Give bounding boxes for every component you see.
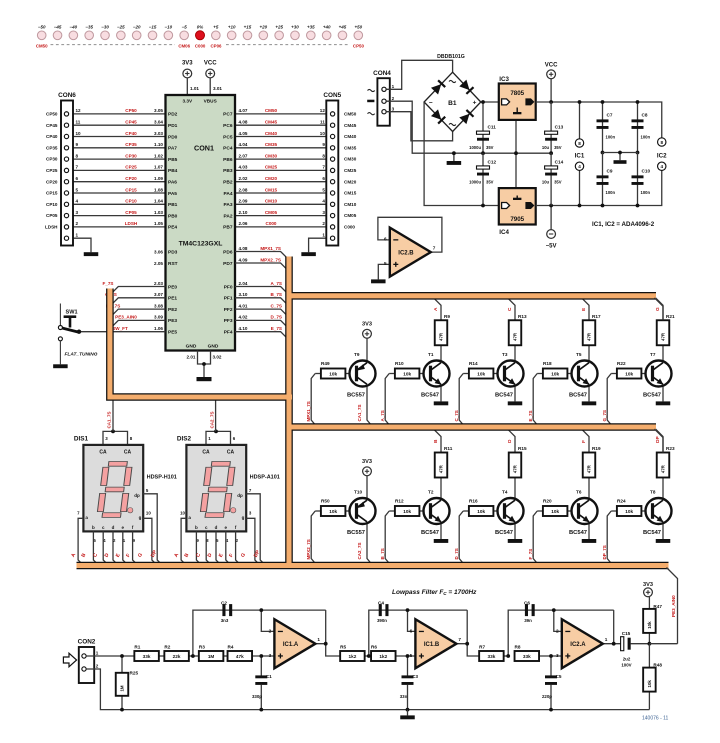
svg-text:1.02: 1.02 xyxy=(154,153,163,158)
svg-text:PD6: PD6 xyxy=(223,249,233,255)
svg-text:3: 3 xyxy=(322,210,325,215)
svg-text:10k: 10k xyxy=(625,371,633,376)
svg-text:47R: 47R xyxy=(439,464,444,473)
svg-text:5: 5 xyxy=(76,187,79,192)
svg-text:MPX2_7S: MPX2_7S xyxy=(306,539,311,559)
svg-text:CP06: CP06 xyxy=(211,44,223,49)
svg-text:3.09: 3.09 xyxy=(154,315,163,320)
svg-text:35V: 35V xyxy=(554,145,562,150)
svg-text:+30: +30 xyxy=(291,24,299,29)
svg-text:B1: B1 xyxy=(448,100,457,107)
svg-text:PD1: PD1 xyxy=(168,123,178,129)
svg-text:−35: −35 xyxy=(85,24,93,29)
svg-text:g: g xyxy=(242,515,245,520)
svg-text:1M: 1M xyxy=(208,654,215,659)
svg-text:−: − xyxy=(429,99,433,106)
svg-text:CM10: CM10 xyxy=(265,199,278,204)
svg-text:6: 6 xyxy=(410,628,413,633)
svg-text:B: B xyxy=(433,439,439,443)
svg-text:PB6: PB6 xyxy=(223,157,233,163)
svg-text:IC1.B: IC1.B xyxy=(424,642,440,648)
svg-text:PE1: PE1 xyxy=(168,296,177,302)
svg-text:BC547: BC547 xyxy=(569,392,587,398)
svg-text:CM45: CM45 xyxy=(265,120,278,125)
svg-text:CA: CA xyxy=(99,450,107,456)
svg-text:d: d xyxy=(215,525,218,530)
svg-text:CP45: CP45 xyxy=(125,120,137,125)
svg-text:CM15: CM15 xyxy=(344,191,357,196)
svg-text:BC547: BC547 xyxy=(495,530,513,536)
svg-text:PB5: PB5 xyxy=(168,157,178,163)
svg-text:R10: R10 xyxy=(395,361,404,366)
svg-text:PB1: PB1 xyxy=(168,202,178,208)
svg-text:PD2: PD2 xyxy=(168,112,178,118)
svg-text:5: 5 xyxy=(384,261,387,266)
svg-text:BC547: BC547 xyxy=(643,530,661,536)
svg-text:CP50: CP50 xyxy=(46,112,58,117)
svg-text:D: D xyxy=(507,439,513,443)
svg-text:10k: 10k xyxy=(551,509,559,514)
svg-text:PA7: PA7 xyxy=(168,146,177,152)
svg-text:1: 1 xyxy=(392,84,395,89)
svg-text:100n: 100n xyxy=(641,134,651,139)
svg-text:CP30: CP30 xyxy=(125,153,137,158)
svg-text:BC557: BC557 xyxy=(347,392,365,398)
svg-text:−30: −30 xyxy=(101,24,109,29)
svg-text:CA: CA xyxy=(124,450,132,456)
svg-text:10k: 10k xyxy=(647,621,652,629)
svg-text:7: 7 xyxy=(76,165,79,170)
svg-text:IC2: IC2 xyxy=(657,153,667,160)
svg-text:d: d xyxy=(112,525,115,530)
svg-text:CON2: CON2 xyxy=(78,638,96,645)
svg-text:PE2: PE2 xyxy=(168,307,177,313)
svg-text:VBUS: VBUS xyxy=(204,98,217,103)
svg-text:CON4: CON4 xyxy=(373,70,391,77)
svg-text:47R: 47R xyxy=(587,332,592,341)
svg-text:47R: 47R xyxy=(661,464,666,473)
svg-text:BC547: BC547 xyxy=(643,392,661,398)
svg-text:PD7: PD7 xyxy=(223,261,233,267)
svg-text:2.10: 2.10 xyxy=(239,210,248,215)
svg-text:−40: −40 xyxy=(70,24,78,29)
svg-text:2.05: 2.05 xyxy=(154,261,163,266)
svg-text:10: 10 xyxy=(180,511,185,516)
svg-text:CA: CA xyxy=(227,450,235,456)
svg-text:PB2: PB2 xyxy=(223,180,233,186)
svg-text:CM50: CM50 xyxy=(265,108,278,113)
svg-text:0%: 0% xyxy=(197,24,204,29)
svg-text:2.06: 2.06 xyxy=(239,221,248,226)
svg-text:IC1.A: IC1.A xyxy=(283,642,299,648)
svg-text:−5: −5 xyxy=(182,24,188,29)
svg-text:47R: 47R xyxy=(439,332,444,341)
svg-text:IC2.B: IC2.B xyxy=(398,250,414,256)
svg-text:C14: C14 xyxy=(555,160,564,165)
svg-text:9: 9 xyxy=(322,142,325,147)
svg-text:CP35: CP35 xyxy=(125,142,137,147)
svg-text:2: 2 xyxy=(269,628,272,633)
svg-text:C5: C5 xyxy=(556,674,562,679)
svg-text:R1: R1 xyxy=(134,644,140,649)
svg-text:CP15: CP15 xyxy=(46,191,58,196)
svg-text:10: 10 xyxy=(146,511,151,516)
svg-text:MPX1_7S: MPX1_7S xyxy=(306,401,311,421)
svg-text:DIS2: DIS2 xyxy=(177,435,192,442)
svg-text:6: 6 xyxy=(76,176,79,181)
svg-text:PE5: PE5 xyxy=(168,330,177,336)
svg-text:2.03: 2.03 xyxy=(154,281,163,286)
svg-text:1: 1 xyxy=(317,637,320,642)
svg-text:LDSH: LDSH xyxy=(125,221,138,226)
svg-text:CP10: CP10 xyxy=(125,199,137,204)
svg-text:4: 4 xyxy=(578,164,581,169)
svg-text:8: 8 xyxy=(76,153,79,158)
svg-text:CP45: CP45 xyxy=(46,123,58,128)
svg-text:IC1: IC1 xyxy=(575,153,585,160)
svg-text:5: 5 xyxy=(322,187,325,192)
svg-text:T3: T3 xyxy=(502,352,508,357)
svg-text:CM35: CM35 xyxy=(344,145,357,150)
svg-text:C8: C8 xyxy=(642,113,648,118)
svg-text:4: 4 xyxy=(660,164,663,169)
svg-text:10u: 10u xyxy=(542,180,550,185)
svg-text:CM30: CM30 xyxy=(265,153,278,158)
svg-text:4.03: 4.03 xyxy=(239,165,248,170)
svg-text:10k: 10k xyxy=(329,371,337,376)
svg-text:dp: dp xyxy=(237,493,243,498)
svg-text:GND: GND xyxy=(186,344,197,350)
svg-text:47R: 47R xyxy=(513,332,518,341)
svg-text:C_7S: C_7S xyxy=(454,410,459,421)
svg-text:CM06: CM06 xyxy=(178,44,190,49)
svg-text:2u2: 2u2 xyxy=(623,657,631,662)
svg-text:CM30: CM30 xyxy=(344,157,357,162)
svg-text:CM50: CM50 xyxy=(36,44,48,49)
svg-text:CM05: CM05 xyxy=(265,210,278,215)
svg-text:C: C xyxy=(507,307,513,311)
svg-text:2: 2 xyxy=(556,628,559,633)
svg-text:4.05: 4.05 xyxy=(239,131,248,136)
svg-text:CM15: CM15 xyxy=(265,187,278,192)
svg-text:CM45: CM45 xyxy=(344,123,357,128)
svg-text:2.04: 2.04 xyxy=(239,281,248,286)
svg-text:35V: 35V xyxy=(554,180,562,185)
svg-text:CP50: CP50 xyxy=(353,44,365,49)
svg-text:PA5: PA5 xyxy=(168,191,177,197)
svg-text:CM20: CM20 xyxy=(344,179,357,184)
svg-text:B_7S: B_7S xyxy=(271,292,283,297)
svg-text:5: 5 xyxy=(410,653,413,658)
svg-text:C13: C13 xyxy=(555,125,564,130)
svg-text:100n: 100n xyxy=(606,134,616,139)
svg-text:g: g xyxy=(139,515,142,520)
svg-text:C9: C9 xyxy=(607,169,613,174)
svg-text:CM25: CM25 xyxy=(265,165,278,170)
svg-text:PF0: PF0 xyxy=(224,284,233,290)
svg-text:CP05: CP05 xyxy=(46,213,58,218)
svg-text:1: 1 xyxy=(605,637,608,642)
svg-text:1k2: 1k2 xyxy=(379,654,387,659)
svg-text:3.03: 3.03 xyxy=(154,131,163,136)
svg-text:PC6: PC6 xyxy=(223,123,233,129)
svg-text:R14: R14 xyxy=(469,361,478,366)
svg-text:PB0: PB0 xyxy=(168,213,178,219)
svg-text:C4: C4 xyxy=(378,600,384,605)
svg-text:CM20: CM20 xyxy=(265,176,278,181)
svg-text:2.08: 2.08 xyxy=(239,187,248,192)
svg-text:CM25: CM25 xyxy=(344,168,357,173)
svg-text:+20: +20 xyxy=(259,24,267,29)
svg-text:PA2: PA2 xyxy=(224,213,233,219)
svg-text:PE3_AIN0: PE3_AIN0 xyxy=(115,315,137,320)
svg-text:10k: 10k xyxy=(477,371,485,376)
svg-text:DBDB101G: DBDB101G xyxy=(437,54,465,60)
svg-text:CM50: CM50 xyxy=(344,112,357,117)
svg-text:4: 4 xyxy=(322,199,325,204)
svg-text:BC547: BC547 xyxy=(495,392,513,398)
svg-text:R16: R16 xyxy=(469,499,478,504)
svg-text:HDSP-A101: HDSP-A101 xyxy=(250,474,280,480)
svg-text:T1: T1 xyxy=(428,352,434,357)
svg-text:R15: R15 xyxy=(518,446,527,451)
svg-text:1000u: 1000u xyxy=(469,180,481,185)
svg-text:F: F xyxy=(581,440,587,443)
svg-text:3: 3 xyxy=(392,106,395,111)
svg-text:b: b xyxy=(92,525,95,530)
svg-text:10u: 10u xyxy=(542,145,550,150)
svg-text:R9: R9 xyxy=(444,314,450,319)
svg-text:R4: R4 xyxy=(228,644,234,649)
svg-text:12: 12 xyxy=(320,108,326,113)
svg-text:R48: R48 xyxy=(653,663,662,668)
svg-text:b: b xyxy=(195,525,198,530)
svg-text:CON5: CON5 xyxy=(323,92,341,99)
svg-text:CP40: CP40 xyxy=(46,134,58,139)
svg-text:1.06: 1.06 xyxy=(154,326,163,331)
svg-text:T8: T8 xyxy=(650,489,656,494)
svg-text:PB4: PB4 xyxy=(168,168,178,174)
svg-text:3V3: 3V3 xyxy=(182,61,193,67)
svg-text:220p: 220p xyxy=(542,694,552,699)
svg-text:2: 2 xyxy=(392,96,395,101)
svg-text:PA3: PA3 xyxy=(224,202,233,208)
svg-text:2.02: 2.02 xyxy=(239,176,248,181)
svg-text:R3: R3 xyxy=(199,644,205,649)
svg-text:100n: 100n xyxy=(641,190,651,195)
svg-text:2: 2 xyxy=(76,221,79,226)
svg-text:C_7S: C_7S xyxy=(271,303,283,308)
svg-text:3: 3 xyxy=(76,210,79,215)
svg-text:3.04: 3.04 xyxy=(154,120,163,125)
svg-text:140076 - 11: 140076 - 11 xyxy=(642,716,669,722)
svg-text:BC547: BC547 xyxy=(569,530,587,536)
svg-text:7: 7 xyxy=(458,637,461,642)
svg-text:+50: +50 xyxy=(354,24,362,29)
svg-text:4.10: 4.10 xyxy=(239,326,248,331)
svg-text:47R: 47R xyxy=(661,332,666,341)
svg-text:VCC: VCC xyxy=(204,61,217,67)
svg-text:−5V: −5V xyxy=(546,244,557,250)
svg-text:10: 10 xyxy=(76,131,82,136)
svg-text:R5: R5 xyxy=(340,644,346,649)
svg-text:+40: +40 xyxy=(323,24,331,29)
svg-text:BC547: BC547 xyxy=(421,392,439,398)
svg-text:1: 1 xyxy=(322,233,325,238)
svg-text:R2: R2 xyxy=(164,644,170,649)
svg-text:1.01: 1.01 xyxy=(190,86,199,91)
svg-text:BC557: BC557 xyxy=(347,530,365,536)
svg-text:D_7S: D_7S xyxy=(454,548,459,559)
svg-text:33n: 33n xyxy=(400,694,408,699)
svg-text:6: 6 xyxy=(322,176,325,181)
svg-text:CM05: CM05 xyxy=(344,213,357,218)
svg-text:IC4: IC4 xyxy=(499,229,509,236)
svg-text:4: 4 xyxy=(76,199,79,204)
svg-text:3.08: 3.08 xyxy=(154,303,163,308)
svg-text:3.05: 3.05 xyxy=(154,108,163,113)
svg-text:CP05: CP05 xyxy=(125,210,137,215)
svg-text:C000: C000 xyxy=(266,221,277,226)
svg-text:+35: +35 xyxy=(307,24,315,29)
svg-text:1.04: 1.04 xyxy=(154,199,163,204)
svg-text:1.07: 1.07 xyxy=(154,165,163,170)
svg-text:SW_FT: SW_FT xyxy=(112,326,128,331)
svg-text:G: G xyxy=(655,307,661,311)
svg-text:+5: +5 xyxy=(213,24,219,29)
svg-text:CM10: CM10 xyxy=(344,202,357,207)
svg-text:10k: 10k xyxy=(329,509,337,514)
svg-text:R20: R20 xyxy=(543,499,552,504)
svg-text:dp: dp xyxy=(134,493,140,498)
svg-text:R49: R49 xyxy=(321,361,330,366)
svg-text:2.07: 2.07 xyxy=(239,153,248,158)
svg-text:PF1: PF1 xyxy=(224,296,233,302)
svg-text:11: 11 xyxy=(320,120,325,125)
svg-text:+15: +15 xyxy=(244,24,252,29)
svg-text:10k: 10k xyxy=(403,509,411,514)
svg-text:1.03: 1.03 xyxy=(154,210,163,215)
svg-text:R12: R12 xyxy=(395,499,404,504)
svg-text:T9: T9 xyxy=(354,352,360,357)
svg-text:2: 2 xyxy=(322,221,325,226)
svg-text:CP50: CP50 xyxy=(125,108,137,113)
svg-text:MPX2_7S: MPX2_7S xyxy=(260,257,281,262)
svg-text:CA1_7S: CA1_7S xyxy=(357,404,362,421)
svg-text:35V: 35V xyxy=(486,180,494,185)
svg-text:1.10: 1.10 xyxy=(154,142,163,147)
svg-text:10k: 10k xyxy=(647,680,652,688)
svg-text:+: + xyxy=(473,99,477,106)
svg-text:10k: 10k xyxy=(403,371,411,376)
svg-text:IC3: IC3 xyxy=(499,76,509,83)
svg-text:47R: 47R xyxy=(513,464,518,473)
svg-text:CP25: CP25 xyxy=(125,165,137,170)
svg-text:PA6: PA6 xyxy=(168,180,177,186)
svg-text:CA2_7S: CA2_7S xyxy=(357,542,362,559)
svg-text:390n: 390n xyxy=(377,618,387,623)
svg-text:CM40: CM40 xyxy=(265,131,278,136)
svg-text:PE3: PE3 xyxy=(168,318,177,324)
svg-text:Lowpass Filter FC = 1700Hz: Lowpass Filter FC = 1700Hz xyxy=(392,589,477,596)
svg-text:33k: 33k xyxy=(523,654,531,659)
svg-text:T6: T6 xyxy=(576,489,582,494)
svg-text:8: 8 xyxy=(578,141,581,146)
svg-text:10k: 10k xyxy=(625,509,633,514)
svg-text:CA1_7S: CA1_7S xyxy=(107,411,112,428)
svg-text:3: 3 xyxy=(269,653,272,658)
svg-text:R17: R17 xyxy=(592,314,601,319)
svg-text:DP_7S: DP_7S xyxy=(602,545,607,559)
svg-text:2: 2 xyxy=(96,664,99,669)
svg-text:IC1, IC2 = ADA4096-2: IC1, IC2 = ADA4096-2 xyxy=(592,221,655,228)
svg-text:CP15: CP15 xyxy=(125,187,137,192)
svg-text:T7: T7 xyxy=(650,352,656,357)
svg-text:R50: R50 xyxy=(321,499,330,504)
svg-text:IC2.A: IC2.A xyxy=(570,642,586,648)
svg-text:3V3: 3V3 xyxy=(643,582,653,588)
svg-text:33k: 33k xyxy=(487,654,495,659)
svg-text:R6: R6 xyxy=(371,644,377,649)
svg-text:C11: C11 xyxy=(488,125,497,130)
svg-text:R8: R8 xyxy=(515,644,521,649)
svg-text:7: 7 xyxy=(433,246,436,251)
svg-text:4.08: 4.08 xyxy=(239,246,248,251)
svg-text:CP35: CP35 xyxy=(46,145,58,150)
svg-text:4.07: 4.07 xyxy=(239,108,248,113)
svg-text:100V: 100V xyxy=(621,663,631,668)
svg-text:−10: −10 xyxy=(165,24,173,29)
svg-text:CM40: CM40 xyxy=(344,134,357,139)
svg-text:100n: 100n xyxy=(606,190,616,195)
svg-text:−20: −20 xyxy=(133,24,141,29)
svg-text:47R: 47R xyxy=(587,464,592,473)
svg-text:D_7S: D_7S xyxy=(271,315,283,320)
svg-text:1.05: 1.05 xyxy=(154,221,163,226)
svg-text:1M: 1M xyxy=(120,685,125,691)
svg-text:7905: 7905 xyxy=(510,216,524,223)
svg-text:3V3: 3V3 xyxy=(362,459,372,465)
svg-text:R13: R13 xyxy=(518,314,527,319)
svg-text:C000: C000 xyxy=(344,225,355,230)
svg-text:R18: R18 xyxy=(543,361,552,366)
svg-text:C7: C7 xyxy=(607,113,613,118)
svg-text:CM35: CM35 xyxy=(265,142,278,147)
svg-text:PC7: PC7 xyxy=(223,112,233,118)
svg-text:R11: R11 xyxy=(444,446,453,451)
svg-text:R47: R47 xyxy=(653,604,662,609)
svg-text:+25: +25 xyxy=(275,24,283,29)
svg-text:FLAT_TUNING: FLAT_TUNING xyxy=(65,352,98,358)
svg-text:R21: R21 xyxy=(666,314,675,319)
svg-text:TM4C123GXL: TM4C123GXL xyxy=(179,241,223,248)
svg-text:PD3: PD3 xyxy=(168,249,178,255)
svg-text:RST: RST xyxy=(168,261,178,267)
svg-text:E_7S: E_7S xyxy=(528,410,533,421)
svg-text:T2: T2 xyxy=(428,489,434,494)
svg-text:−50: −50 xyxy=(38,24,46,29)
svg-text:1: 1 xyxy=(76,233,79,238)
svg-text:PC4: PC4 xyxy=(223,146,233,152)
svg-text:PD0: PD0 xyxy=(168,134,178,140)
svg-text:4.08: 4.08 xyxy=(239,120,248,125)
svg-text:1: 1 xyxy=(96,651,99,656)
svg-text:2.01: 2.01 xyxy=(187,354,196,359)
svg-text:C2: C2 xyxy=(221,600,227,605)
svg-text:3.06: 3.06 xyxy=(154,249,163,254)
svg-text:3.3V: 3.3V xyxy=(182,98,193,103)
svg-text:DIS1: DIS1 xyxy=(74,435,89,442)
